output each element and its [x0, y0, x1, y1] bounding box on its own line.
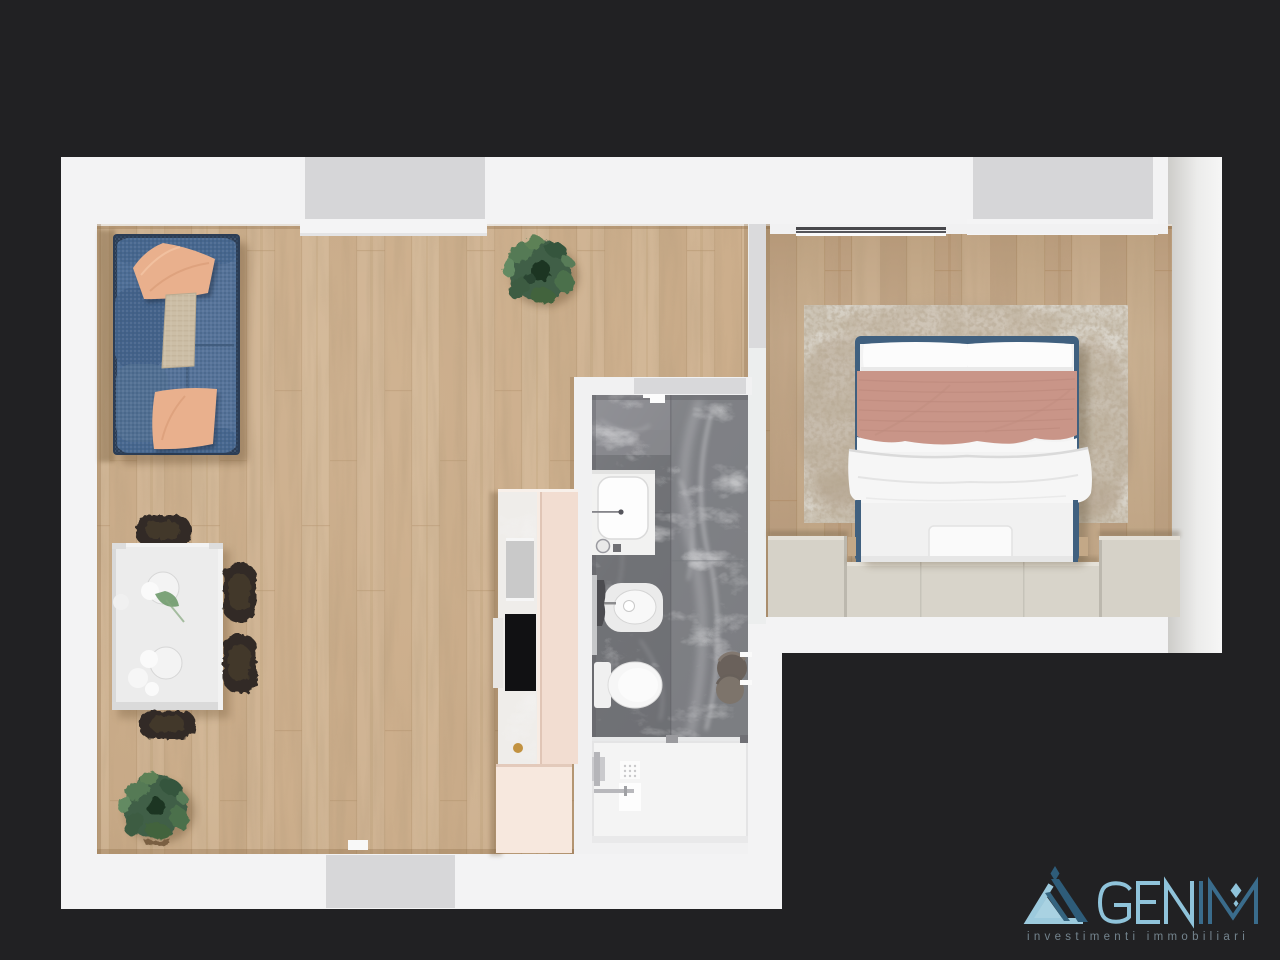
svg-text:investimenti immobiliari: investimenti immobiliari — [1027, 931, 1249, 943]
